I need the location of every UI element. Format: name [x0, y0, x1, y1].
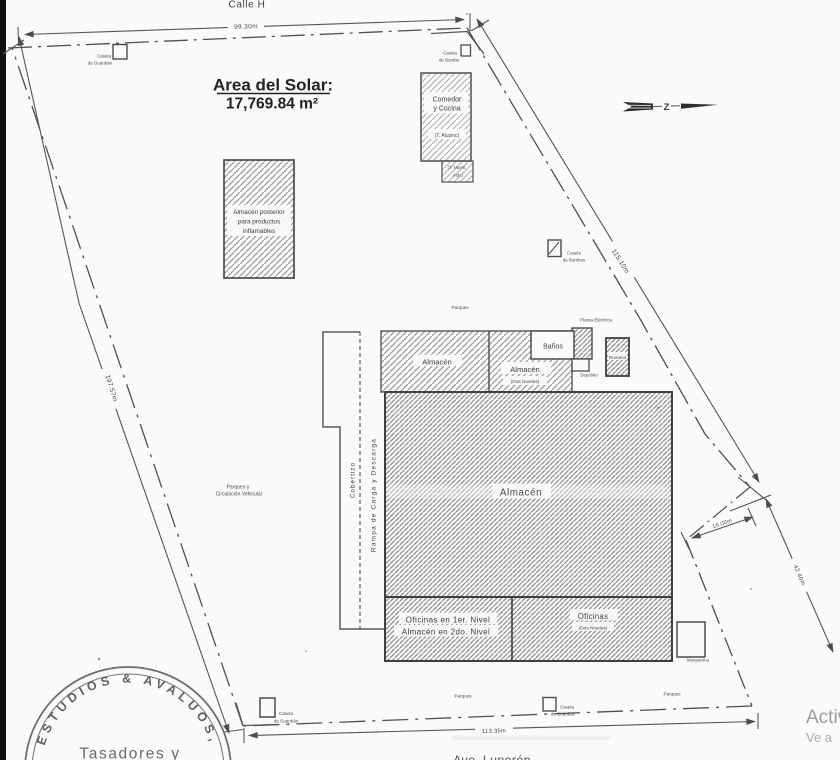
svg-text:(T. Aluzinc): (T. Aluzinc): [435, 133, 460, 139]
svg-text:Parques: Parques: [454, 694, 472, 699]
svg-text:Almacén: Almacén: [500, 488, 542, 499]
svg-text:Parqueo y: Parqueo y: [227, 485, 250, 491]
svg-text:17,769.84 m²: 17,769.84 m²: [226, 96, 318, 113]
svg-text:Parques: Parques: [451, 305, 469, 310]
svg-text:Comedor: Comedor: [433, 97, 462, 104]
svg-text:Depósito: Depósito: [580, 373, 598, 378]
svg-text:Ave. Luperón: Ave. Luperón: [453, 754, 531, 760]
svg-text:de Guardián: de Guardián: [88, 61, 113, 66]
svg-text:Circulación Vehicular: Circulación Vehicular: [216, 492, 263, 498]
svg-text:Romana: Romana: [609, 355, 627, 360]
svg-text:Cobertizo: Cobertizo: [349, 462, 356, 498]
svg-text:Caseta: Caseta: [97, 54, 111, 59]
svg-text:Oficinas en 1er. Nivel: Oficinas en 1er. Nivel: [406, 616, 490, 625]
svg-text:Caseta: Caseta: [443, 51, 457, 56]
svg-text:Almacén en 2do. Nivel: Almacén en 2do. Nivel: [402, 628, 490, 637]
svg-text:Calle H: Calle H: [229, 0, 266, 11]
svg-text:y Cocina: y Cocina: [433, 106, 460, 113]
svg-text:Ve a: Ve a: [806, 730, 833, 745]
svg-text:(Dos Niveles): (Dos Niveles): [511, 379, 540, 385]
svg-text:Marquesina: Marquesina: [687, 658, 710, 663]
svg-text:Caseta: Caseta: [567, 251, 581, 256]
svg-text:de Bomba: de Bomba: [439, 58, 460, 63]
svg-text:(T. Huem.: (T. Huem.: [447, 165, 466, 170]
svg-text:de Guardián: de Guardián: [274, 719, 299, 724]
svg-text:Almacén: Almacén: [422, 358, 452, 367]
svg-text:inflamables: inflamables: [243, 228, 275, 235]
svg-text:Parques: Parques: [663, 692, 681, 697]
svg-text:Almacén: Almacén: [510, 365, 540, 374]
svg-text:de Guardián: de Guardián: [551, 712, 576, 717]
svg-text:Activ: Activ: [806, 707, 840, 728]
svg-text:Asb.): Asb.): [453, 173, 464, 178]
svg-text:Rampa de Carga y Descarga: Rampa de Carga y Descarga: [371, 438, 378, 552]
svg-text:Almacén posterior: Almacén posterior: [233, 209, 285, 216]
svg-text:Planta Eléctrica: Planta Eléctrica: [580, 318, 612, 323]
svg-text:Caseta: Caseta: [279, 711, 293, 716]
svg-text:Oficinas: Oficinas: [578, 612, 609, 621]
svg-text:Tasadores y: Tasadores y: [79, 746, 180, 760]
svg-text:99.30m: 99.30m: [234, 23, 258, 31]
svg-text:Z: Z: [664, 102, 670, 113]
svg-text:113.35m: 113.35m: [482, 728, 506, 735]
svg-text:Caseta: Caseta: [560, 705, 574, 710]
svg-text:de Bombas: de Bombas: [563, 258, 586, 263]
svg-text:Baños: Baños: [543, 344, 563, 351]
svg-text:(Dos Niveles): (Dos Niveles): [579, 626, 608, 632]
svg-text:para productos: para productos: [238, 219, 281, 226]
svg-text:Area del Solar:: Area del Solar:: [213, 76, 333, 95]
